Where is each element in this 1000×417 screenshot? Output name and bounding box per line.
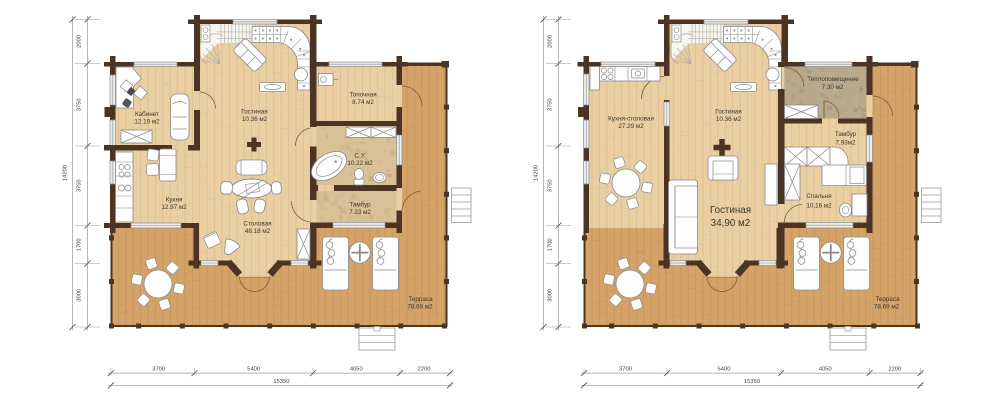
svg-text:12.97 м2: 12.97 м2 xyxy=(161,204,187,211)
svg-text:5400: 5400 xyxy=(718,367,731,373)
svg-text:Терраса: Терраса xyxy=(408,296,433,303)
svg-text:78,69 м2: 78,69 м2 xyxy=(874,304,900,311)
svg-text:3000: 3000 xyxy=(548,289,554,302)
svg-text:7,93м2: 7,93м2 xyxy=(835,140,856,147)
svg-text:5400: 5400 xyxy=(247,367,260,373)
svg-text:С.У.: С.У. xyxy=(354,153,365,160)
svg-text:14200: 14200 xyxy=(534,165,540,181)
svg-text:27.29 м2: 27.29 м2 xyxy=(618,123,644,130)
svg-text:3750: 3750 xyxy=(77,179,83,192)
svg-text:Тамбур: Тамбур xyxy=(349,201,371,209)
svg-text:15350: 15350 xyxy=(273,379,289,385)
svg-text:2000: 2000 xyxy=(548,35,554,48)
svg-text:12.19 м2: 12.19 м2 xyxy=(134,119,160,126)
svg-text:4050: 4050 xyxy=(819,367,832,373)
svg-text:2200: 2200 xyxy=(888,367,901,373)
svg-text:3750: 3750 xyxy=(548,179,554,192)
svg-text:14200: 14200 xyxy=(63,165,69,181)
svg-text:Гостиная: Гостиная xyxy=(241,109,267,116)
svg-text:3700: 3700 xyxy=(619,367,632,373)
svg-text:78.69 м2: 78.69 м2 xyxy=(407,304,433,311)
svg-text:Топочная: Топочная xyxy=(349,92,376,99)
svg-text:3750: 3750 xyxy=(77,98,83,111)
svg-text:34,90 м2: 34,90 м2 xyxy=(711,218,750,229)
svg-text:10,16 м2: 10,16 м2 xyxy=(806,203,832,210)
svg-text:Терраса: Терраса xyxy=(875,296,900,303)
svg-text:Кухня: Кухня xyxy=(166,197,183,204)
svg-text:10.36 м2: 10.36 м2 xyxy=(242,116,268,123)
svg-text:Теплопомещение: Теплопомещение xyxy=(807,76,859,83)
svg-text:Тамбур: Тамбур xyxy=(835,130,857,138)
svg-text:3000: 3000 xyxy=(77,289,83,302)
svg-text:10.36 м2: 10.36 м2 xyxy=(716,116,742,123)
svg-text:Кабинет: Кабинет xyxy=(135,110,159,118)
svg-text:Кухня-столовая: Кухня-столовая xyxy=(608,116,654,123)
svg-text:Столовая: Столовая xyxy=(243,221,271,228)
svg-text:Спальня: Спальня xyxy=(806,193,831,200)
svg-text:8.74 м2: 8.74 м2 xyxy=(352,99,374,106)
svg-text:2000: 2000 xyxy=(77,35,83,48)
svg-text:15350: 15350 xyxy=(744,379,760,385)
svg-text:4050: 4050 xyxy=(350,367,363,373)
svg-text:48.18 м2: 48.18 м2 xyxy=(245,228,271,235)
svg-text:1700: 1700 xyxy=(77,238,83,251)
svg-text:Гостиная: Гостиная xyxy=(715,109,741,116)
svg-text:2200: 2200 xyxy=(418,367,431,373)
svg-text:Гостиная: Гостиная xyxy=(710,205,751,216)
svg-text:3750: 3750 xyxy=(548,98,554,111)
svg-text:7.30 м2: 7.30 м2 xyxy=(822,84,844,91)
svg-text:7.23 м2: 7.23 м2 xyxy=(349,209,371,216)
svg-text:3700: 3700 xyxy=(152,367,165,373)
svg-text:1700: 1700 xyxy=(548,238,554,251)
svg-text:10.22 м2: 10.22 м2 xyxy=(347,160,373,167)
